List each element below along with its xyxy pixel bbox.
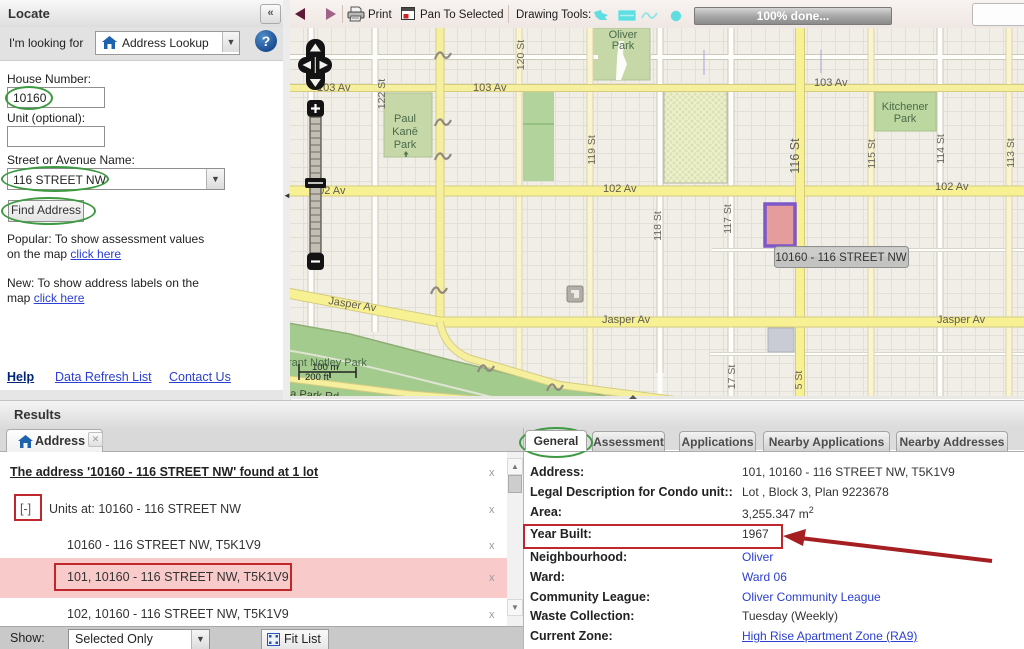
svg-text:200 ft: 200 ft — [305, 372, 329, 383]
svg-text:114 St: 114 St — [935, 134, 947, 164]
svg-text:102 Av: 102 Av — [935, 181, 969, 193]
svg-text:115 St: 115 St — [866, 139, 878, 169]
svg-text:Park: Park — [394, 139, 417, 151]
svg-text:119 St: 119 St — [586, 135, 598, 165]
svg-text:120 St: 120 St — [515, 40, 527, 70]
svg-text:Park: Park — [894, 113, 917, 125]
svg-text:10160 - 116 STREET NW: 10160 - 116 STREET NW — [775, 252, 906, 264]
svg-text:117 St: 117 St — [722, 204, 734, 234]
svg-text:17 St: 17 St — [726, 365, 738, 390]
svg-text:Jasper Av: Jasper Av — [602, 314, 651, 326]
svg-text:5 St: 5 St — [793, 371, 805, 390]
svg-text:122 St: 122 St — [376, 79, 388, 109]
svg-text:Park: Park — [612, 40, 635, 52]
svg-text:103 Av: 103 Av — [473, 82, 507, 94]
svg-text:103 Av: 103 Av — [814, 77, 848, 89]
svg-text:118 St: 118 St — [652, 211, 664, 241]
svg-text:102 Av: 102 Av — [603, 183, 637, 195]
svg-text:Jasper Av: Jasper Av — [937, 314, 986, 326]
svg-text:116 St: 116 St — [788, 138, 802, 174]
svg-text:Kanē: Kanē — [392, 126, 418, 138]
svg-text:Paul: Paul — [394, 113, 416, 125]
svg-text:113 St: 113 St — [1005, 138, 1017, 168]
svg-text:Kitchener: Kitchener — [882, 101, 929, 113]
